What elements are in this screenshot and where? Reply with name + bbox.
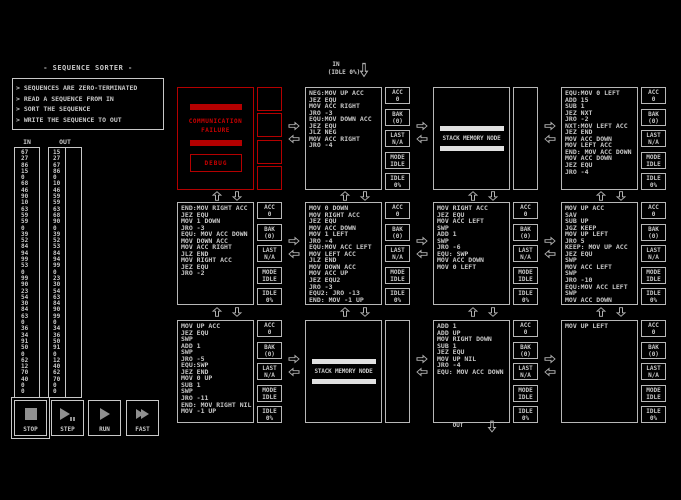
port-arrow-down-icon — [486, 190, 500, 202]
port-arrow-right-icon — [415, 235, 429, 247]
fast-icon — [127, 406, 158, 422]
out-column-header: OUT — [48, 138, 82, 146]
port-arrow-down-icon — [358, 190, 372, 202]
stat-last-value: N/A — [386, 254, 409, 261]
io-in-value: 0 — [21, 389, 39, 395]
stat-last: LASTN/A — [257, 363, 282, 380]
stat-acc: ACC0 — [385, 87, 410, 104]
stat-mode-value: IDLE — [642, 394, 665, 401]
stat-mode: MODEIDLE — [641, 385, 666, 402]
stat-mode: MODEIDLE — [641, 267, 666, 284]
stat-acc: ACC0 — [641, 320, 666, 337]
step-icon — [52, 406, 83, 422]
stat-acc: ACC0 — [257, 320, 282, 337]
port-arrow-right-icon — [415, 353, 429, 365]
stat-idle: IDLE0% — [385, 288, 410, 305]
stat-acc-value: 0 — [258, 329, 281, 336]
stat-idle-label: IDLE — [514, 290, 537, 297]
stat-idle-label: IDLE — [514, 408, 537, 415]
run-icon — [89, 406, 120, 422]
stat-mode-value: IDLE — [642, 161, 665, 168]
stat-idle: IDLE0% — [641, 288, 666, 305]
stat-last-label: LAST — [386, 247, 409, 254]
stat-mode-value: IDLE — [386, 276, 409, 283]
stat-bak-value: (0) — [514, 233, 537, 240]
port-arrow-down-icon — [486, 306, 500, 318]
stat-last: LASTN/A — [641, 363, 666, 380]
stat-bak-label: BAK — [386, 226, 409, 233]
stat-idle: IDLE0% — [513, 288, 538, 305]
description-line: > SORT THE SEQUENCE — [16, 104, 160, 115]
port-arrow-down-icon — [358, 306, 372, 318]
stat-bak-label: BAK — [514, 226, 537, 233]
stat-mode-label: MODE — [642, 387, 665, 394]
port-arrow-right-icon — [543, 353, 557, 365]
stat-acc: ACC0 — [513, 320, 538, 337]
stat-bak-label: BAK — [642, 344, 665, 351]
port-arrow-up-icon — [594, 306, 608, 318]
code-editor[interactable]: MOV UP ACCJEZ EQUSWPADD 1SWPJRO -5EQU:SW… — [177, 320, 254, 423]
stat-idle: IDLE0% — [513, 406, 538, 423]
stat-acc: ACC0 — [257, 202, 282, 219]
stat-bak-value: (0) — [642, 351, 665, 358]
stat-bak-value: (0) — [642, 118, 665, 125]
stat-last-label: LAST — [642, 365, 665, 372]
stat-acc-label: ACC — [642, 322, 665, 329]
stat-mode-value: IDLE — [258, 276, 281, 283]
stat-mode-value: IDLE — [258, 394, 281, 401]
stack-memory-node: STACK MEMORY NODE — [433, 87, 510, 190]
stat-mode-label: MODE — [386, 269, 409, 276]
stat-acc: ACC0 — [513, 202, 538, 219]
stack-side-panel — [513, 87, 538, 190]
stat-last-label: LAST — [386, 132, 409, 139]
code-node: EQU:MOV 0 LEFTADD 15SUB 1JEZ NXTJRO -2NX… — [561, 87, 666, 190]
stat-bak-label: BAK — [514, 344, 537, 351]
stat-idle: IDLE0% — [385, 173, 410, 190]
stat-idle-label: IDLE — [258, 290, 281, 297]
stat-acc: ACC0 — [641, 202, 666, 219]
stat-idle-value: 0% — [642, 182, 665, 189]
code-line: MOV 0 LEFT — [437, 264, 509, 271]
stat-idle-value: 0% — [258, 297, 281, 304]
code-line: JRO -4 — [309, 142, 381, 149]
node-status-column: ACC0BAK(0)LASTN/AMODEIDLEIDLE0% — [513, 320, 538, 423]
run-button-label: RUN — [89, 426, 120, 433]
description-line: > READ A SEQUENCE FROM IN — [16, 94, 160, 105]
stat-idle: IDLE0% — [641, 406, 666, 423]
stat-idle-value: 0% — [642, 297, 665, 304]
stat-last-value: N/A — [642, 254, 665, 261]
step-button[interactable]: STEP — [51, 400, 84, 436]
stat-mode-value: IDLE — [386, 161, 409, 168]
port-arrow-up-icon — [210, 190, 224, 202]
stat-last-value: N/A — [514, 254, 537, 261]
port-arrow-down-icon — [614, 190, 628, 202]
stat-mode: MODEIDLE — [513, 267, 538, 284]
code-line: MOV ACC DOWN — [565, 297, 637, 304]
stat-acc-label: ACC — [514, 322, 537, 329]
stack-bar — [312, 359, 376, 364]
stat-bak-label: BAK — [642, 226, 665, 233]
stat-acc-value: 0 — [642, 329, 665, 336]
stat-last-label: LAST — [514, 365, 537, 372]
stat-bak-label: BAK — [642, 111, 665, 118]
stack-node-label: STACK MEMORY NODE — [442, 135, 500, 142]
port-arrow-down-icon — [614, 306, 628, 318]
stat-idle: IDLE0% — [257, 406, 282, 423]
stat-acc-label: ACC — [514, 204, 537, 211]
stack-side-panel — [385, 320, 410, 423]
port-arrow-down-icon — [230, 190, 244, 202]
stack-bar — [440, 146, 504, 151]
port-arrow-up-icon — [594, 190, 608, 202]
stat-acc-label: ACC — [258, 204, 281, 211]
stat-bak-value: (0) — [258, 233, 281, 240]
stat-last-label: LAST — [258, 365, 281, 372]
stat-mode: MODEIDLE — [641, 152, 666, 169]
stat-last: LASTN/A — [641, 245, 666, 262]
stack-node: STACK MEMORY NODE — [433, 87, 538, 190]
stop-icon — [15, 406, 46, 422]
code-editor[interactable]: MOV UP ACCSAVSUB UPJGZ KEEPMOV UP LEFTJR… — [561, 202, 638, 305]
stat-last-value: N/A — [642, 372, 665, 379]
puzzle-title: - SEQUENCE SORTER - — [12, 64, 164, 72]
stat-idle: IDLE0% — [257, 288, 282, 305]
port-arrow-right-icon — [287, 353, 301, 365]
code-line: JRO -2 — [181, 270, 253, 277]
node-status-column: ACC0BAK(0)LASTN/AMODEIDLEIDLE0% — [385, 87, 410, 190]
node-status-column: ACC0BAK(0)LASTN/AMODEIDLEIDLE0% — [641, 87, 666, 190]
stat-bak: BAK(0) — [513, 224, 538, 241]
code-line: END: MOV -1 UP — [309, 297, 381, 304]
port-arrow-left-icon — [543, 366, 557, 378]
stop-button[interactable]: STOP — [14, 400, 47, 436]
stat-acc-value: 0 — [258, 211, 281, 218]
code-editor[interactable]: MOV UP LEFT — [561, 320, 638, 423]
port-arrow-up-icon — [338, 190, 352, 202]
corrupt-bar — [190, 140, 242, 146]
stat-bak: BAK(0) — [641, 224, 666, 241]
stat-mode-label: MODE — [514, 387, 537, 394]
stat-bak-value: (0) — [642, 233, 665, 240]
stat-acc-label: ACC — [258, 322, 281, 329]
stat-acc-label: ACC — [642, 89, 665, 96]
run-button[interactable]: RUN — [88, 400, 121, 436]
stat-last-label: LAST — [258, 247, 281, 254]
port-arrow-left-icon — [543, 248, 557, 260]
stat-acc-value: 0 — [642, 96, 665, 103]
stat-last: LASTN/A — [257, 245, 282, 262]
code-node: NEG:MOV UP ACCJEZ EQUMOV ACC RIGHTJRO -3… — [305, 87, 410, 190]
stat-last-label: LAST — [514, 247, 537, 254]
port-arrow-down-icon — [486, 419, 498, 434]
stat-acc: ACC0 — [641, 87, 666, 104]
description-line: > SEQUENCES ARE ZERO-TERMINATED — [16, 83, 160, 94]
stat-idle-label: IDLE — [386, 175, 409, 182]
code-node: MOV UP ACCJEZ EQUSWPADD 1SWPJRO -5EQU:SW… — [177, 320, 282, 423]
stat-mode-label: MODE — [642, 269, 665, 276]
code-line: JRO -4 — [565, 169, 637, 176]
stat-bak: BAK(0) — [257, 342, 282, 359]
stat-acc-value: 0 — [386, 211, 409, 218]
stat-idle-value: 0% — [386, 297, 409, 304]
out-values-list: 1527678601046595963689003952538494990233… — [48, 147, 82, 398]
port-arrow-left-icon — [287, 248, 301, 260]
fast-button-label: FAST — [127, 426, 158, 433]
stat-bak: BAK(0) — [385, 109, 410, 126]
code-node: MOV RIGHT ACCJEZ EQUMOV ACC LEFTSWPADD 1… — [433, 202, 538, 305]
in-column-header: IN — [14, 138, 40, 146]
stack-bar — [440, 126, 504, 131]
stack-node: STACK MEMORY NODE — [305, 320, 410, 423]
port-in-label: IN — [316, 61, 356, 68]
fast-button[interactable]: FAST — [126, 400, 159, 436]
port-arrow-left-icon — [415, 133, 429, 145]
port-arrow-right-icon — [543, 120, 557, 132]
code-line: EQU: MOV ACC DOWN — [437, 369, 509, 376]
port-arrow-down-icon — [358, 61, 370, 79]
stat-mode-label: MODE — [258, 387, 281, 394]
stop-button-label: STOP — [15, 426, 46, 433]
stat-idle-label: IDLE — [258, 408, 281, 415]
stat-bak-label: BAK — [258, 344, 281, 351]
corrupt-status-box — [257, 87, 282, 111]
stat-mode-value: IDLE — [514, 276, 537, 283]
stat-idle-label: IDLE — [642, 290, 665, 297]
stat-bak-value: (0) — [386, 233, 409, 240]
port-arrow-right-icon — [415, 120, 429, 132]
stat-last-label: LAST — [642, 132, 665, 139]
stat-mode: MODEIDLE — [385, 267, 410, 284]
corrupt-node: COMMUNICATIONFAILUREDEBUG — [177, 87, 282, 190]
corrupt-bar — [190, 104, 242, 110]
stat-idle: IDLE0% — [641, 173, 666, 190]
stat-bak: BAK(0) — [257, 224, 282, 241]
stat-last-value: N/A — [386, 139, 409, 146]
stat-last-label: LAST — [642, 247, 665, 254]
node-status-column: ACC0BAK(0)LASTN/AMODEIDLEIDLE0% — [641, 202, 666, 305]
code-line: MOV -1 UP — [181, 408, 253, 415]
code-node: ADD 1ADD UPMOV RIGHT DOWNSUB 1JEZ EQUMOV… — [433, 320, 538, 423]
stat-acc-value: 0 — [386, 96, 409, 103]
stack-bar — [312, 379, 376, 384]
corrupted-node-panel: COMMUNICATIONFAILUREDEBUG — [177, 87, 254, 190]
stat-bak-value: (0) — [514, 351, 537, 358]
node-status-column: ACC0BAK(0)LASTN/AMODEIDLEIDLE0% — [257, 202, 282, 305]
stat-bak: BAK(0) — [641, 109, 666, 126]
stat-mode: MODEIDLE — [257, 385, 282, 402]
port-arrow-up-icon — [466, 190, 480, 202]
io-out-expected-value: 0 — [53, 389, 65, 395]
corrupt-message-line: FAILURE — [178, 127, 253, 135]
stat-idle-value: 0% — [642, 415, 665, 422]
stat-last-value: N/A — [258, 254, 281, 261]
stat-last: LASTN/A — [641, 130, 666, 147]
stat-acc-label: ACC — [386, 89, 409, 96]
stat-mode: MODEIDLE — [513, 385, 538, 402]
port-arrow-down-icon — [230, 306, 244, 318]
stat-bak: BAK(0) — [513, 342, 538, 359]
stat-bak-label: BAK — [386, 111, 409, 118]
code-line: MOV UP LEFT — [565, 323, 637, 330]
stack-memory-node: STACK MEMORY NODE — [305, 320, 382, 423]
stat-acc-label: ACC — [642, 204, 665, 211]
stat-last: LASTN/A — [513, 363, 538, 380]
stat-acc-value: 0 — [514, 211, 537, 218]
port-arrow-left-icon — [415, 248, 429, 260]
stat-last-value: N/A — [642, 139, 665, 146]
stat-bak-label: BAK — [258, 226, 281, 233]
stat-idle-label: IDLE — [386, 290, 409, 297]
stat-acc: ACC0 — [385, 202, 410, 219]
step-button-label: STEP — [52, 426, 83, 433]
puzzle-description-box: > SEQUENCES ARE ZERO-TERMINATED > READ A… — [12, 78, 164, 130]
stat-bak-value: (0) — [258, 351, 281, 358]
stat-mode-label: MODE — [642, 154, 665, 161]
corrupt-status-box — [257, 140, 282, 164]
stat-mode: MODEIDLE — [257, 267, 282, 284]
code-node: MOV UP LEFTACC0BAK(0)LASTN/AMODEIDLEIDLE… — [561, 320, 666, 423]
stat-mode: MODEIDLE — [385, 152, 410, 169]
stat-bak-value: (0) — [386, 118, 409, 125]
stat-bak: BAK(0) — [385, 224, 410, 241]
stat-last-value: N/A — [258, 372, 281, 379]
stat-mode-value: IDLE — [642, 276, 665, 283]
stat-mode-label: MODE — [258, 269, 281, 276]
port-out-label: OUT — [438, 422, 478, 429]
stat-last: LASTN/A — [385, 245, 410, 262]
description-line: > WRITE THE SEQUENCE TO OUT — [16, 115, 160, 126]
stat-idle-value: 0% — [258, 415, 281, 422]
stat-last-value: N/A — [514, 372, 537, 379]
code-editor[interactable]: MOV RIGHT ACCJEZ EQUMOV ACC LEFTSWPADD 1… — [433, 202, 510, 305]
stat-mode-label: MODE — [386, 154, 409, 161]
port-arrow-left-icon — [543, 133, 557, 145]
code-node: MOV 0 DOWNMOV RIGHT ACCJEZ EQUMOV ACC DO… — [305, 202, 410, 305]
stack-node-label: STACK MEMORY NODE — [314, 368, 372, 375]
debug-button[interactable]: DEBUG — [190, 154, 242, 172]
out-actual-column — [66, 148, 81, 397]
stat-mode-label: MODE — [514, 269, 537, 276]
stat-acc-value: 0 — [642, 211, 665, 218]
port-arrow-left-icon — [287, 366, 301, 378]
port-arrow-right-icon — [287, 120, 301, 132]
stat-acc-label: ACC — [386, 204, 409, 211]
tis100-screen: - SEQUENCE SORTER - > SEQUENCES ARE ZERO… — [0, 0, 681, 500]
port-arrow-up-icon — [210, 306, 224, 318]
in-values-list: 6727861506846901063595903952849499530999… — [14, 147, 40, 398]
stat-idle-label: IDLE — [642, 408, 665, 415]
port-arrow-left-icon — [415, 366, 429, 378]
stat-idle-value: 0% — [514, 415, 537, 422]
stat-idle-label: IDLE — [642, 175, 665, 182]
code-editor[interactable]: ADD 1ADD UPMOV RIGHT DOWNSUB 1JEZ EQUMOV… — [433, 320, 510, 423]
node-status-column: ACC0BAK(0)LASTN/AMODEIDLEIDLE0% — [385, 202, 410, 305]
node-status-column: ACC0BAK(0)LASTN/AMODEIDLEIDLE0% — [513, 202, 538, 305]
out-expected-column: 1527678601046595963689003952538494990233… — [49, 148, 66, 397]
stat-idle-value: 0% — [386, 182, 409, 189]
code-editor[interactable]: MOV 0 DOWNMOV RIGHT ACCJEZ EQUMOV ACC DO… — [305, 202, 382, 305]
corrupt-status-column — [257, 87, 282, 190]
node-status-column: ACC0BAK(0)LASTN/AMODEIDLEIDLE0% — [641, 320, 666, 423]
corrupt-message-line: COMMUNICATION — [178, 118, 253, 126]
port-arrow-up-icon — [338, 306, 352, 318]
code-editor[interactable]: EQU:MOV 0 LEFTADD 15SUB 1JEZ NXTJRO -2NX… — [561, 87, 638, 190]
node-status-column: ACC0BAK(0)LASTN/AMODEIDLEIDLE0% — [257, 320, 282, 423]
code-editor[interactable]: END:MOV RIGHT ACCJEZ EQUMOV 1 DOWNJRO -3… — [177, 202, 254, 305]
corrupt-status-box — [257, 113, 282, 137]
stat-acc-value: 0 — [514, 329, 537, 336]
port-arrow-right-icon — [287, 235, 301, 247]
stat-last: LASTN/A — [385, 130, 410, 147]
control-bar: STOP STEP RUN FAST — [14, 400, 164, 437]
port-arrow-right-icon — [543, 235, 557, 247]
code-node: END:MOV RIGHT ACCJEZ EQUMOV 1 DOWNJRO -3… — [177, 202, 282, 305]
code-editor[interactable]: NEG:MOV UP ACCJEZ EQUMOV ACC RIGHTJRO -3… — [305, 87, 382, 190]
port-arrow-left-icon — [287, 133, 301, 145]
stat-idle-value: 0% — [514, 297, 537, 304]
stat-last: LASTN/A — [513, 245, 538, 262]
port-arrow-up-icon — [466, 306, 480, 318]
corrupt-status-box — [257, 166, 282, 190]
stat-bak: BAK(0) — [641, 342, 666, 359]
stat-mode-value: IDLE — [514, 394, 537, 401]
code-node: MOV UP ACCSAVSUB UPJGZ KEEPMOV UP LEFTJR… — [561, 202, 666, 305]
